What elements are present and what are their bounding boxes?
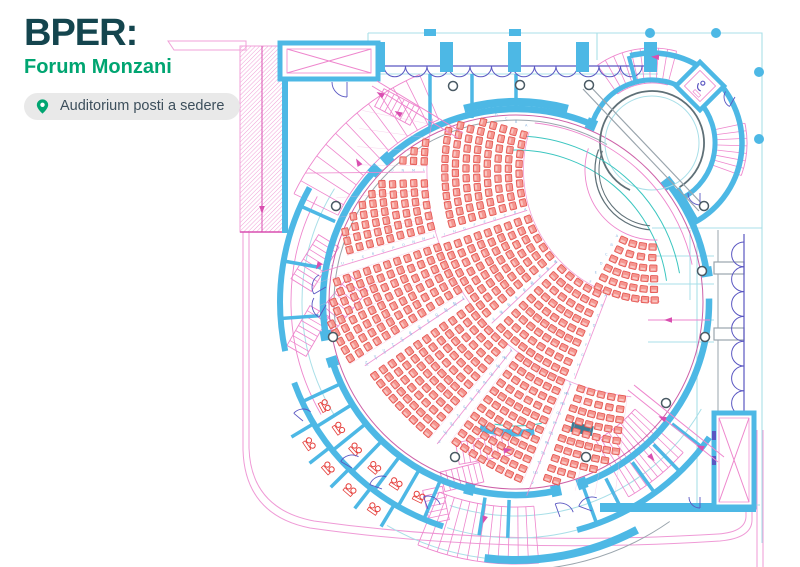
seat <box>491 332 501 342</box>
seat <box>639 264 647 271</box>
seat <box>453 150 460 158</box>
seat <box>475 136 483 144</box>
seat <box>341 323 350 333</box>
svg-text:I: I <box>493 318 494 322</box>
location-pin-icon <box>34 98 51 115</box>
seat <box>436 412 446 422</box>
seat <box>612 448 620 455</box>
elevator-diamond <box>676 62 724 110</box>
seat <box>534 300 544 310</box>
seat <box>451 437 461 447</box>
svg-text:L: L <box>433 234 435 238</box>
seat <box>390 191 397 199</box>
seat <box>442 146 449 154</box>
svg-text:Q: Q <box>550 432 553 436</box>
seat <box>412 300 421 310</box>
seat <box>422 190 429 198</box>
column <box>451 453 460 462</box>
seat <box>466 267 475 277</box>
seat <box>500 280 510 290</box>
svg-text:U: U <box>535 471 538 475</box>
seat <box>557 468 566 476</box>
svg-text:A: A <box>616 234 619 238</box>
seat <box>579 463 588 471</box>
seat <box>464 194 471 202</box>
seat <box>443 192 450 200</box>
seat <box>538 391 547 400</box>
seat <box>439 322 449 332</box>
seat <box>651 297 658 303</box>
seat <box>603 446 611 454</box>
seat <box>507 192 515 200</box>
column <box>585 81 594 90</box>
seat <box>381 207 388 215</box>
seat <box>566 298 576 307</box>
seat <box>503 420 513 429</box>
column <box>516 81 525 90</box>
toilet-icon <box>302 437 316 452</box>
seat <box>548 298 558 308</box>
seat <box>589 465 598 473</box>
svg-text:S: S <box>543 451 546 455</box>
seat <box>390 279 399 288</box>
seat <box>423 201 430 209</box>
svg-text:N: N <box>562 402 565 406</box>
seat <box>476 348 486 358</box>
seat <box>391 201 398 209</box>
seat <box>495 175 502 183</box>
seat <box>551 363 560 372</box>
seat <box>362 220 370 228</box>
seat <box>349 315 358 324</box>
circular-room <box>591 53 742 225</box>
seat <box>470 293 479 303</box>
seat <box>494 225 503 234</box>
seat <box>408 314 417 324</box>
seat <box>343 237 351 246</box>
seat <box>504 221 513 230</box>
svg-text:F: F <box>585 343 587 347</box>
seat <box>554 444 563 452</box>
seat <box>402 361 412 371</box>
seat <box>465 135 473 143</box>
seat <box>445 329 455 339</box>
svg-text:M: M <box>422 237 425 241</box>
seat <box>484 355 494 365</box>
escalator-band <box>240 46 284 232</box>
toilet-icon <box>367 460 382 474</box>
seat <box>510 258 519 268</box>
seat <box>430 288 439 298</box>
seat <box>514 218 523 227</box>
seat <box>497 233 506 242</box>
seat <box>563 447 572 455</box>
seat <box>641 275 649 282</box>
seat <box>421 293 430 303</box>
seat <box>436 252 445 261</box>
seat <box>584 420 593 428</box>
seat <box>356 279 365 288</box>
seat <box>373 293 382 302</box>
seat <box>506 287 516 297</box>
seat <box>388 394 398 404</box>
seat <box>377 301 386 310</box>
seat <box>510 336 520 346</box>
seat <box>454 239 463 248</box>
seat <box>411 274 420 283</box>
seat <box>358 333 367 343</box>
seat <box>471 275 480 285</box>
seat <box>495 465 505 474</box>
seat <box>563 357 572 366</box>
seat <box>523 257 533 267</box>
seat <box>372 336 381 346</box>
seat <box>501 264 510 274</box>
seat <box>392 211 400 219</box>
seat <box>547 464 556 472</box>
seat <box>440 261 449 270</box>
seat <box>509 460 518 469</box>
seat <box>429 405 439 415</box>
seat <box>558 434 567 442</box>
seat <box>389 301 398 311</box>
seat <box>345 246 353 255</box>
seat <box>402 408 412 418</box>
location-badge: Auditorium posti a sedere <box>24 93 240 120</box>
seat <box>496 323 506 333</box>
seat <box>409 401 419 411</box>
seat <box>543 474 552 482</box>
seat <box>468 213 476 222</box>
seat <box>351 222 359 230</box>
svg-text:F: F <box>516 296 518 300</box>
seat <box>448 219 456 228</box>
seat <box>423 369 433 379</box>
seat <box>584 398 593 406</box>
seat <box>469 340 479 350</box>
seat <box>551 386 560 395</box>
seat <box>565 414 574 422</box>
seat <box>616 405 624 412</box>
seat <box>341 228 349 237</box>
seat <box>464 235 473 244</box>
seat <box>463 365 473 375</box>
seat <box>496 378 506 388</box>
svg-text:D: D <box>593 323 596 327</box>
svg-text:I: I <box>444 233 445 237</box>
seat <box>379 180 386 188</box>
seat <box>530 411 539 420</box>
seat <box>431 362 441 372</box>
seat <box>394 310 403 320</box>
seat <box>413 250 422 259</box>
seat <box>609 278 618 287</box>
seat <box>499 124 507 133</box>
seat <box>518 140 526 148</box>
seat <box>526 348 536 357</box>
svg-text:O: O <box>402 243 405 247</box>
seat <box>540 319 550 329</box>
seat <box>425 355 435 365</box>
svg-text:N: N <box>497 365 500 369</box>
seat <box>485 140 492 148</box>
seat <box>399 319 408 329</box>
seat <box>384 372 394 382</box>
seat <box>628 240 637 248</box>
seat <box>534 377 544 386</box>
seat <box>478 210 486 219</box>
seat <box>457 344 467 354</box>
seat <box>369 284 378 293</box>
seat <box>485 189 492 197</box>
seat <box>518 441 527 450</box>
seat <box>483 395 493 405</box>
seat <box>570 460 579 468</box>
seat <box>562 424 571 432</box>
seat <box>366 240 374 249</box>
seat <box>523 454 532 463</box>
seat <box>388 359 398 369</box>
seat <box>518 342 528 352</box>
seat <box>497 392 507 401</box>
seat <box>542 307 552 317</box>
seat <box>463 155 470 163</box>
svg-text:C: C <box>605 252 608 256</box>
svg-text:R: R <box>547 442 550 446</box>
seat <box>363 297 372 306</box>
seat <box>407 264 416 273</box>
seat <box>430 265 439 274</box>
seat <box>382 386 392 396</box>
seat <box>429 376 439 386</box>
svg-text:V: V <box>531 481 534 485</box>
seat <box>453 188 460 196</box>
seat <box>475 192 482 200</box>
seat <box>380 283 389 292</box>
seat <box>363 267 371 276</box>
seat <box>395 401 405 411</box>
seat <box>578 407 587 415</box>
seat <box>500 406 510 415</box>
seat <box>396 266 405 275</box>
seat <box>484 150 491 158</box>
seat <box>534 286 544 296</box>
seat <box>529 265 539 275</box>
seat <box>463 184 470 192</box>
seat <box>486 278 495 288</box>
seat <box>533 313 543 323</box>
seat <box>594 423 603 431</box>
seat <box>511 309 521 319</box>
seat <box>404 219 412 228</box>
seat <box>477 404 487 414</box>
seat <box>576 385 585 393</box>
seat <box>416 422 426 432</box>
seat <box>474 183 481 191</box>
seat <box>601 457 609 465</box>
seat <box>368 306 377 315</box>
seat <box>612 268 621 277</box>
seat <box>495 155 502 163</box>
seat <box>464 350 474 360</box>
seat <box>359 201 366 209</box>
seat <box>640 285 648 292</box>
seat <box>417 260 426 269</box>
seat <box>519 330 529 340</box>
seat <box>471 357 481 367</box>
seat <box>484 170 491 178</box>
seat <box>421 148 428 156</box>
seat <box>403 254 412 263</box>
seat <box>369 200 376 208</box>
seat <box>444 269 453 278</box>
seat <box>427 222 435 231</box>
seat <box>556 278 566 288</box>
seat <box>481 248 490 257</box>
direction-arrow <box>647 453 656 463</box>
seat <box>454 198 461 206</box>
seat <box>554 352 564 361</box>
seat <box>495 165 501 172</box>
seat <box>650 286 657 292</box>
svg-text:H: H <box>577 363 580 367</box>
seat <box>476 262 485 272</box>
svg-text:A: A <box>525 123 528 127</box>
seat <box>396 231 404 240</box>
curved-staircase <box>418 492 539 564</box>
seat <box>573 395 582 403</box>
column <box>449 82 458 91</box>
seat <box>602 435 610 443</box>
svg-text:Q: Q <box>382 249 385 253</box>
seat <box>353 232 361 241</box>
seat <box>411 189 418 197</box>
seat <box>363 342 372 352</box>
toilet-icon <box>388 477 403 491</box>
seat <box>448 277 457 287</box>
seat <box>464 379 474 389</box>
seat <box>484 179 491 187</box>
seat <box>443 136 450 144</box>
seat <box>396 353 406 363</box>
seat <box>587 410 596 418</box>
seat <box>451 259 460 268</box>
seat <box>497 134 505 143</box>
seat <box>474 231 483 240</box>
seat <box>503 330 513 340</box>
seat <box>550 313 560 322</box>
seat <box>396 387 406 397</box>
seat <box>556 329 566 338</box>
seat <box>535 425 544 434</box>
svg-text:N: N <box>445 309 448 313</box>
svg-text:Q: Q <box>419 327 422 331</box>
svg-text:M: M <box>504 357 507 361</box>
seat <box>536 342 546 351</box>
seat <box>417 226 425 235</box>
column <box>698 267 707 276</box>
svg-text:P: P <box>555 422 558 426</box>
seat <box>405 346 415 356</box>
seat <box>489 121 497 130</box>
seat <box>564 334 574 343</box>
seat <box>442 155 449 163</box>
seat <box>480 270 489 280</box>
column <box>582 453 591 462</box>
seat <box>456 121 464 130</box>
seat <box>376 379 386 389</box>
seat <box>372 218 380 226</box>
seat <box>505 469 514 478</box>
seat <box>437 336 447 346</box>
seat <box>460 276 469 286</box>
seat <box>435 350 445 360</box>
seat <box>364 230 372 239</box>
seat <box>409 415 419 425</box>
seat <box>456 358 466 368</box>
seat <box>427 256 436 265</box>
seat <box>390 380 400 390</box>
svg-text:M: M <box>566 392 569 396</box>
seat <box>451 336 461 346</box>
seat <box>548 324 558 333</box>
seat <box>512 240 521 250</box>
seat <box>399 296 408 306</box>
seat <box>443 343 453 353</box>
toilet-icon <box>342 483 357 497</box>
seat <box>517 249 526 259</box>
seat <box>373 264 382 273</box>
svg-text:B: B <box>515 120 518 124</box>
seat <box>551 454 560 462</box>
seat <box>428 342 438 352</box>
seat <box>376 237 384 246</box>
seat <box>336 287 345 296</box>
svg-text:D: D <box>600 262 603 266</box>
seat <box>358 310 367 319</box>
svg-text:N: N <box>401 168 404 172</box>
seat <box>573 450 582 458</box>
svg-text:T: T <box>457 415 461 419</box>
seat <box>543 405 552 414</box>
seat <box>505 250 514 260</box>
seat <box>615 416 623 423</box>
seat <box>416 407 426 417</box>
seat <box>519 301 529 311</box>
seat <box>567 470 576 478</box>
seat <box>467 125 475 134</box>
seat <box>422 383 432 393</box>
seat <box>356 242 364 251</box>
seat <box>521 235 530 245</box>
seat <box>345 332 354 342</box>
seat <box>353 324 362 334</box>
seat <box>394 221 402 230</box>
column <box>700 202 709 211</box>
seat <box>556 304 566 313</box>
seat <box>442 174 449 182</box>
seat <box>483 340 493 350</box>
seat <box>462 257 471 266</box>
seat <box>508 231 517 240</box>
seat <box>403 209 411 217</box>
seat <box>513 280 523 290</box>
seat <box>504 316 514 326</box>
seat <box>444 291 453 301</box>
seat <box>379 365 389 375</box>
seat <box>476 300 486 310</box>
seat <box>425 212 433 221</box>
